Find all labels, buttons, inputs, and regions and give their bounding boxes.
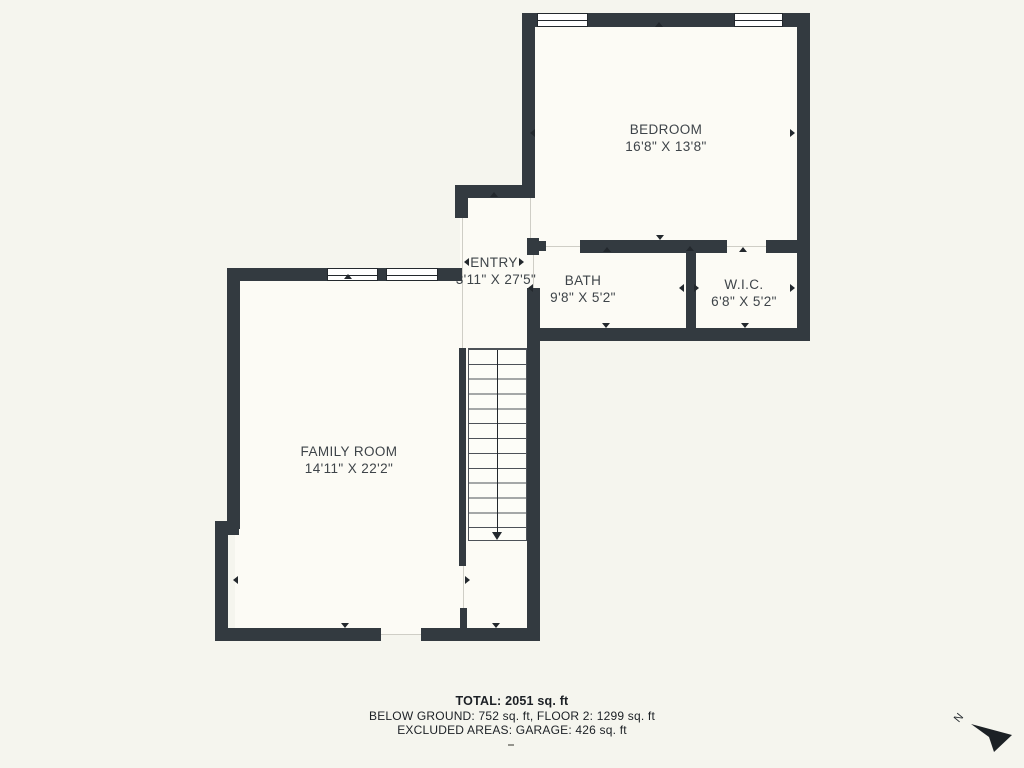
tick-arrow-icon [530,129,535,137]
floor-plan: BEDROOM 16'8" X 13'8" ENTRY 3'11" X 27'5… [0,0,1024,768]
tick-arrow-icon [492,623,500,628]
wall [580,240,688,253]
tick-arrow-icon [490,192,498,197]
tick-arrow-icon [341,623,349,628]
north-arrow-icon [945,700,1020,762]
room-dims: 9'8" X 5'2" [550,289,616,306]
wall [227,268,327,281]
area-breakdown-text: BELOW GROUND: 752 sq. ft, FLOOR 2: 1299 … [0,709,1024,724]
tick-arrow-icon [233,576,238,584]
wall [522,13,535,198]
stair-down-arrow-icon [492,532,502,540]
tick-arrow-icon [656,235,664,240]
tick-arrow-icon [344,274,352,279]
tick-arrow-icon [686,246,694,251]
tick-arrow-icon [741,323,749,328]
wall [766,240,797,253]
window-icon [537,13,588,27]
tick-arrow-icon [790,284,795,292]
window-icon [327,268,378,281]
scale-mark [508,744,514,746]
wall [797,13,810,341]
room-label-bath: BATH 9'8" X 5'2" [550,272,616,306]
tick-arrow-icon [679,284,684,292]
door-jamb [539,241,546,251]
window-mullion [378,268,386,281]
room-label-wic: W.I.C. 6'8" X 5'2" [711,276,777,310]
room-label-family-room: FAMILY ROOM 14'11" X 22'2" [301,443,398,477]
room-dims: 16'8" X 13'8" [625,138,707,155]
wall [527,341,540,641]
door-opening-line [546,246,580,247]
room-name: FAMILY ROOM [301,443,398,460]
entry-boundary-line [530,198,531,240]
wall [438,268,462,281]
tick-arrow-icon [694,284,699,292]
wall [215,521,228,641]
wall [227,268,240,529]
room-name: BATH [550,272,616,289]
room-dims: 6'8" X 5'2" [711,293,777,310]
stair-direction-line [497,350,498,532]
door-opening-line [381,634,421,635]
room-dims: 3'11" X 27'5" [456,271,537,288]
tick-arrow-icon [465,576,470,584]
tick-arrow-icon [464,258,469,266]
wall [694,240,727,253]
tick-arrow-icon [519,258,524,266]
room-label-entry: ENTRY [470,254,518,271]
tick-arrow-icon [602,323,610,328]
area-summary: TOTAL: 2051 sq. ft BELOW GROUND: 752 sq.… [0,694,1024,738]
wall [421,628,534,641]
excluded-area-text: EXCLUDED AREAS: GARAGE: 426 sq. ft [0,723,1024,738]
window-icon [734,13,783,27]
room-name: ENTRY [470,254,518,271]
tick-arrow-icon [655,22,663,27]
window-icon [386,268,438,281]
wall [527,238,539,255]
wall [527,328,810,341]
wall [460,608,467,632]
wall [455,185,468,218]
wall [459,348,466,566]
tick-arrow-icon [739,247,747,252]
room-name: BEDROOM [625,121,707,138]
tick-arrow-icon [603,247,611,252]
total-area-text: TOTAL: 2051 sq. ft [0,694,1024,709]
tick-arrow-icon [528,284,533,292]
tick-arrow-icon [790,129,795,137]
wall [215,628,381,641]
room-dims: 14'11" X 22'2" [301,460,398,477]
room-name: W.I.C. [711,276,777,293]
room-label-bedroom: BEDROOM 16'8" X 13'8" [625,121,707,155]
room-dims-entry: 3'11" X 27'5" [456,271,537,288]
door-opening-line [463,566,464,608]
